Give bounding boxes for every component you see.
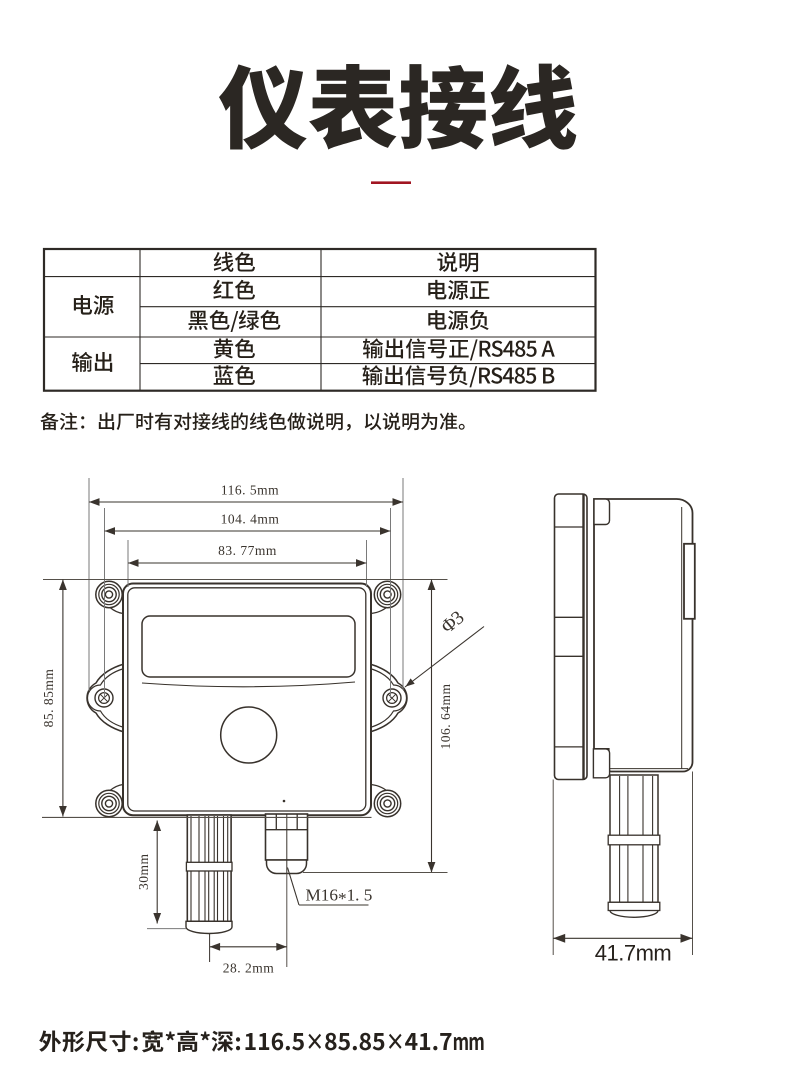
svg-text:104. 4mm: 104. 4mm (221, 512, 280, 527)
svg-text:116. 5mm: 116. 5mm (221, 483, 279, 498)
svg-text:85. 85mm: 85. 85mm (41, 669, 56, 728)
svg-text:41.7mm: 41.7mm (595, 941, 671, 966)
svg-text:106. 64mm: 106. 64mm (438, 683, 453, 749)
svg-text:28. 2mm: 28. 2mm (223, 961, 275, 976)
svg-text:30mm: 30mm (136, 854, 151, 891)
svg-text:83. 77mm: 83. 77mm (218, 543, 277, 558)
